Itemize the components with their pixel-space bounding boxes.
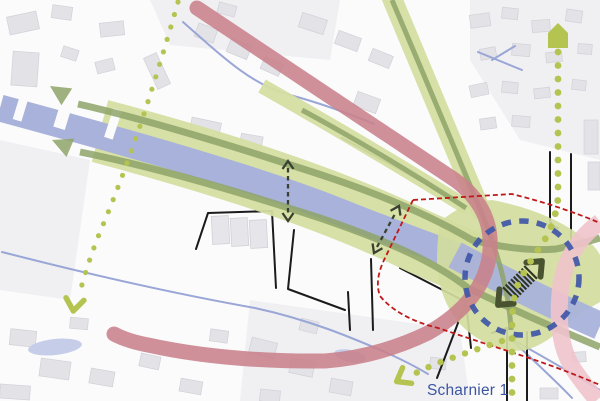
barracks-building	[211, 216, 229, 245]
route-dot	[79, 282, 84, 287]
route-dot	[450, 355, 456, 361]
route-dot	[542, 235, 549, 242]
route-dot	[145, 99, 150, 104]
route-dot	[555, 76, 562, 83]
route-dot	[172, 12, 177, 17]
route-dot	[511, 295, 518, 302]
route-dot	[101, 221, 106, 226]
route-dot	[555, 89, 562, 96]
route-dot	[83, 270, 88, 275]
route-dot	[168, 24, 173, 29]
route-dot	[157, 62, 162, 67]
route-dot	[509, 322, 516, 329]
route-dot	[462, 350, 468, 356]
route-dot	[555, 116, 562, 123]
route-dot	[414, 369, 420, 375]
route-dot	[555, 184, 562, 191]
map-label-scharnier: Scharnier 1	[427, 382, 508, 399]
route-dot	[509, 308, 516, 315]
route-dot	[552, 210, 559, 217]
route-dot	[133, 136, 138, 141]
route-dot	[548, 223, 555, 230]
route-dot	[161, 49, 166, 54]
street-edge	[288, 230, 345, 310]
route-dot	[499, 338, 505, 344]
route-dot	[486, 342, 492, 348]
route-dot	[509, 362, 516, 369]
route-dot	[509, 376, 516, 383]
route-dot	[509, 389, 516, 396]
route-dot	[115, 185, 120, 190]
map-canvas: Scharnier 1	[0, 0, 600, 401]
route-dot	[91, 245, 96, 250]
barracks-building	[230, 218, 248, 247]
route-dot	[425, 364, 431, 370]
dotted-path-arrowhead-icon	[64, 298, 83, 312]
route-dot	[555, 157, 562, 164]
route-dot	[165, 37, 170, 42]
route-dot	[124, 161, 129, 166]
barracks-building	[249, 220, 267, 249]
route-dot	[514, 282, 521, 289]
route-dot	[437, 359, 443, 365]
route-dot	[527, 258, 534, 265]
route-dot	[474, 346, 480, 352]
route-dot	[555, 49, 562, 56]
route-dot	[520, 270, 527, 277]
route-dot	[149, 87, 154, 92]
route-dot	[555, 62, 562, 69]
route-dot	[111, 197, 116, 202]
route-dot	[153, 74, 158, 79]
route-dot	[535, 247, 542, 254]
route-dot	[509, 335, 516, 342]
city-block	[0, 140, 90, 300]
route-dot	[106, 209, 111, 214]
route-dot	[555, 170, 562, 177]
urban-plan-map: Scharnier 1	[0, 0, 600, 401]
route-dot	[509, 349, 516, 356]
route-dot	[555, 130, 562, 137]
route-dot	[141, 111, 146, 116]
route-dot	[129, 148, 134, 153]
route-dot	[137, 124, 142, 129]
route-dot	[554, 197, 561, 204]
route-dot	[555, 103, 562, 110]
route-dot	[555, 143, 562, 150]
route-dot	[96, 233, 101, 238]
route-dot	[87, 258, 92, 263]
route-dot	[120, 173, 125, 178]
